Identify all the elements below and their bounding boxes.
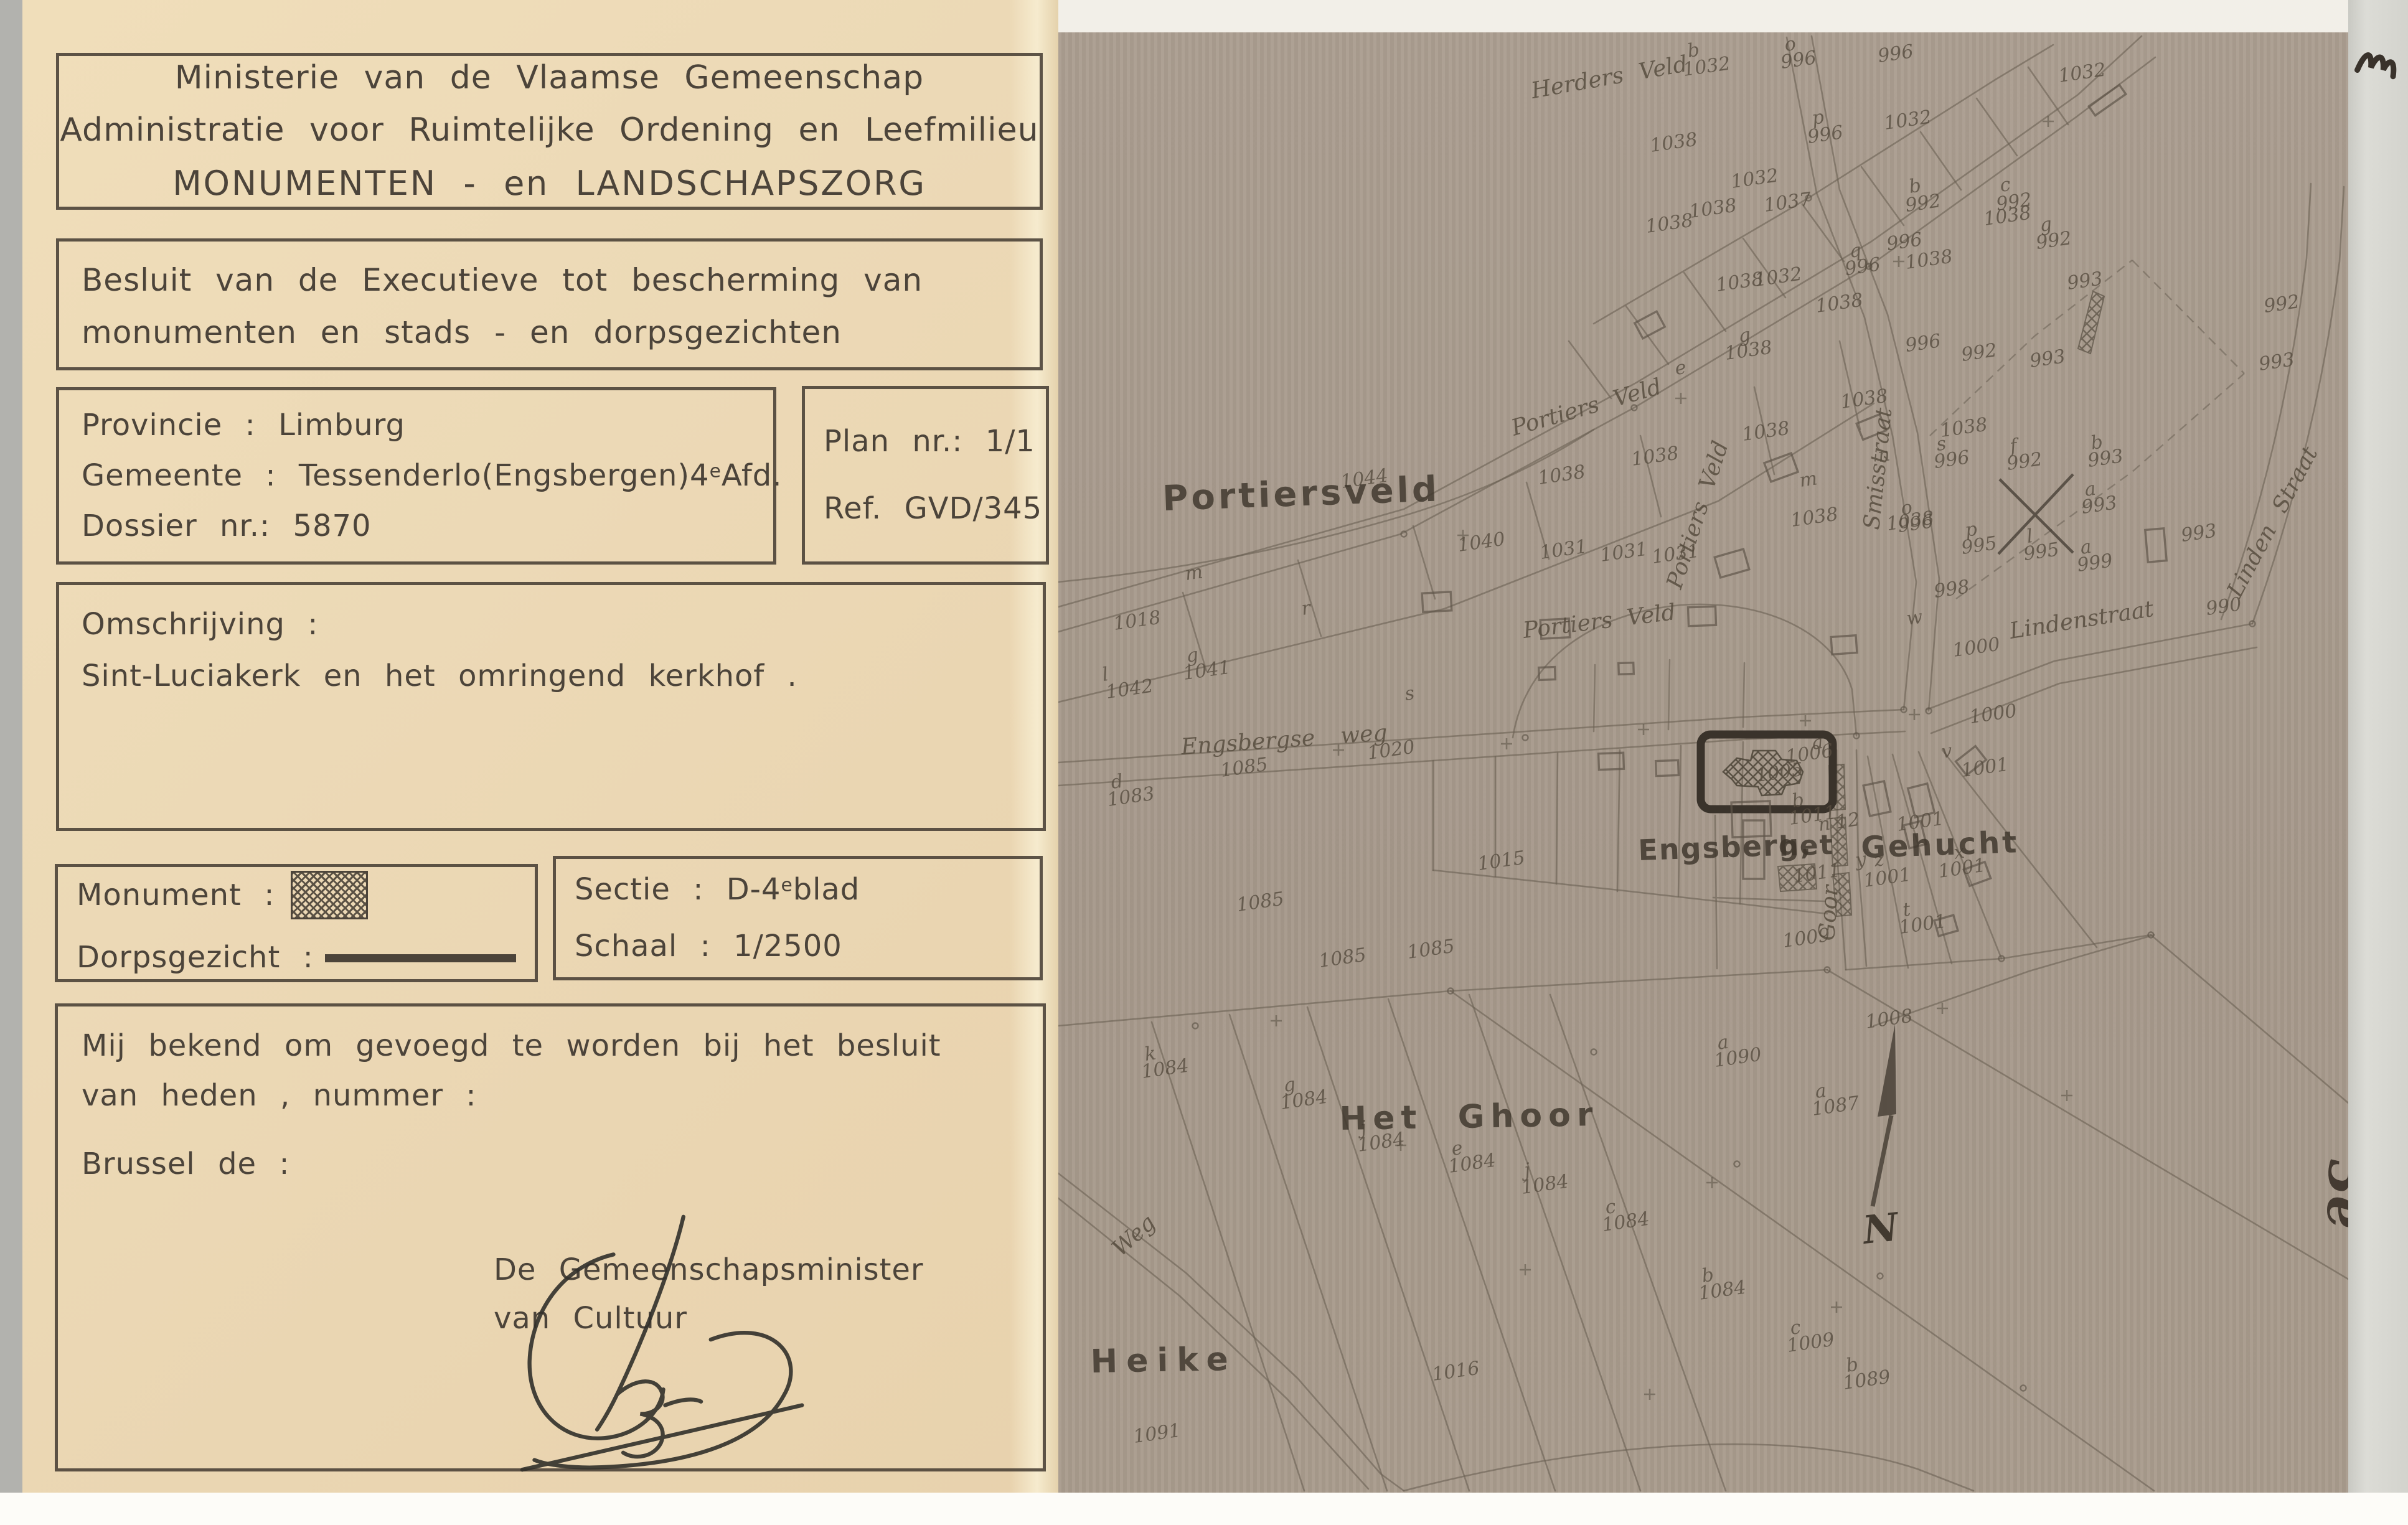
description-box: Omschrijving : Sint-Luciakerk en het omr… [56, 582, 1046, 831]
street-engsbergse-weg: Engsbergse weg [1180, 720, 1388, 760]
reference-field: Ref. GVD/345 [824, 492, 1027, 526]
parcel-number-label: 1032 [1729, 165, 1779, 193]
decree-title-box: Besluit van de Executieve tot beschermin… [56, 238, 1043, 370]
building-symbol [1619, 663, 1634, 675]
dossier-field: Dossier nr.: 5870 [82, 509, 751, 543]
building-symbol [2145, 528, 2166, 562]
parcel-number-label: 1091 [1132, 1420, 1182, 1448]
parcel-number-label: c [1604, 1196, 1617, 1219]
administration-line: Administratie voor Ruimtelijke Ordening … [60, 112, 1038, 149]
parcel-number-label: 1018 [1112, 607, 1162, 635]
parcel-number-label: a [1813, 1080, 1828, 1103]
boundary-cross-icon [1893, 256, 1904, 267]
label-portiersveld: Portiersveld [1162, 469, 1441, 519]
dorpsgezicht-line-swatch [325, 954, 516, 962]
legend-box: Monument : Dorpsgezicht : [55, 864, 538, 982]
parcel-number-label: 1038 [1741, 418, 1790, 446]
parcel-number-label: m [1183, 561, 1204, 585]
parcel-number-label: 1038 [1714, 268, 1764, 296]
decree-title-line: monumenten en stads - en dorpsgezichten [82, 315, 1017, 351]
parcel-number-label: b [1790, 789, 1805, 812]
map-sheet-top-margin [1058, 0, 2348, 32]
boundary-cross-icon [2061, 1090, 2072, 1101]
boundary-node-icon [2021, 1386, 2026, 1391]
parcel-number-label: p [1810, 106, 1825, 129]
boundary-cross-icon [1638, 724, 1649, 735]
parcel-number-label: e [1450, 1137, 1464, 1160]
parcel-number-label: o [1783, 33, 1797, 56]
parcel-number-label: 996 [1843, 253, 1882, 280]
parcel-number-label: 1038 [1536, 461, 1586, 489]
building-symbol [1863, 781, 1891, 816]
parcel-number-label: a [2083, 478, 2097, 501]
parcel-number-label: 1038 [1648, 129, 1698, 157]
boundary-node-icon [1591, 1049, 1597, 1055]
parcel-number-label: b [1845, 1354, 1860, 1377]
parcel-number-label: 993 [2180, 520, 2218, 547]
parcel-number-label: 1085 [1219, 754, 1269, 782]
parcel-number-label: m [1798, 467, 1818, 492]
parcel-number-label: 1085 [1406, 936, 1456, 964]
parcel-number-label: b [1686, 39, 1701, 62]
parcel-number-label: 1038 [1644, 210, 1694, 238]
parcel-number-label: w [1905, 606, 1924, 630]
note-line: Mij bekend om gevoegd te worden bij het … [82, 1029, 941, 1063]
boundary-nodes [1193, 195, 2255, 1391]
boundary-node-icon [1878, 1274, 1883, 1279]
monumenten-line: MONUMENTEN - en LANDSCHAPSZORG [172, 164, 926, 203]
monument-legend-label: Monument : [77, 878, 275, 913]
parcel-number-label: 1038 [1814, 289, 1864, 317]
parcel-number-label: 996 [1876, 40, 1915, 67]
parcel-number-label: b [1907, 175, 1922, 198]
building-symbol [1714, 549, 1749, 578]
street-portiers-veld: Portiers Veld [1508, 374, 1664, 441]
street-lindenstraat: Lindenstraat [2007, 596, 2156, 644]
building-symbol [1656, 760, 1679, 776]
scanned-protection-decree: Ministerie van de Vlaamse Gemeenschap Ad… [0, 0, 2408, 1525]
minister-signature-box: Mij bekend om gevoegd te worden bij het … [55, 1003, 1046, 1471]
scanner-left-edge [0, 0, 22, 1494]
parcel-number-label: 1032 [2057, 59, 2107, 87]
boundary-cross-icon [1831, 1302, 1842, 1313]
parcel-number-label: 992 [2262, 291, 2301, 317]
margin-annotation-3e: 3e [2315, 1158, 2348, 1230]
north-arrow [1873, 1024, 1896, 1206]
parcel-number-label: 996 [1806, 121, 1845, 148]
parcel-number-label: b [1700, 1264, 1715, 1287]
boundary-cross-icon [1937, 1003, 1948, 1014]
street-goor: Goor [1814, 883, 1843, 942]
province-box: Provincie : Limburg Gemeente : Tessender… [56, 387, 776, 565]
ministry-line: Ministerie van de Vlaamse Gemeenschap [175, 60, 924, 97]
plan-number-field: Plan nr.: 1/1 [824, 425, 1027, 459]
scale-field: Schaal : 1/2500 [575, 929, 1021, 964]
parcel-number-label: 1042 [1104, 675, 1154, 703]
note-line: van heden , nummer : [82, 1079, 477, 1113]
building-symbol [1422, 592, 1452, 612]
parcel-number-label: 1016 [1431, 1358, 1480, 1386]
parcel-number-label: 996 [1904, 330, 1942, 357]
parcel-number-label: 993 [2028, 345, 2067, 372]
building-symbol [1688, 606, 1716, 626]
dorpsgezicht-legend-label: Dorpsgezicht : [77, 941, 314, 975]
parcel-number-label: 1037 [1762, 189, 1813, 217]
parcel-number-label: 1032 [1883, 106, 1932, 134]
plan-number-box: Plan nr.: 1/1 Ref. GVD/345 [802, 386, 1049, 565]
label-engsberg: het [1779, 829, 1835, 863]
parcel-number-label: d [1109, 771, 1124, 794]
parcel-number-label: 1031 [1599, 538, 1648, 566]
parcel-number-label: 1001 [1862, 864, 1912, 892]
label-het-ghoor: Ghoor [1457, 1096, 1599, 1136]
parcel-number-label: 1015 [1476, 847, 1526, 875]
building-symbol [1831, 636, 1857, 655]
boundary-cross-icon [1909, 709, 1920, 720]
boundary-node-icon [1523, 735, 1528, 741]
label-gehucht: Gehucht [1860, 825, 2020, 865]
label-heike: Heike [1090, 1341, 1237, 1381]
cadastral-map: 1032b996o99610321032103710321038996p1038… [1058, 32, 2348, 1493]
parcel-number-label: 993 [2257, 349, 2296, 375]
parcel-number-label: 1038 [1982, 202, 2032, 230]
ministry-header-box: Ministerie van de Vlaamse Gemeenschap Ad… [56, 53, 1043, 210]
parcel-number-label: g [1737, 324, 1752, 347]
boundary-cross-icon [1675, 393, 1686, 404]
parcel-number-label: b [2089, 431, 2104, 454]
description-value: Sint-Luciakerk en het omringend kerkhof … [82, 659, 1020, 693]
street-linden-straat: Linden Straat [2222, 442, 2323, 602]
boundary-node-icon [1193, 1023, 1198, 1029]
parcel-number-label: a [1716, 1031, 1730, 1054]
building-symbol [2089, 85, 2125, 115]
street-portiers-veld: Portiers Veld [1521, 599, 1677, 644]
section-scale-box: Sectie : D-4eblad Schaal : 1/2500 [553, 856, 1043, 980]
parcel-number-label: 1038 [1789, 504, 1839, 532]
parcel-number-label: 1038 [1688, 195, 1738, 223]
parcel-number-label: g [1282, 1074, 1297, 1097]
parcel-number-label: 1008 [1864, 1005, 1914, 1033]
parcel-number-label: 1085 [1317, 944, 1367, 972]
parcel-number-label: 1001 [1960, 754, 2010, 782]
parcel-number-label: 993 [2066, 268, 2104, 294]
parcel-number-label: 1085 [1235, 888, 1285, 916]
parcel-number-label: e [1673, 357, 1687, 380]
boundary-cross-icon [1520, 1264, 1531, 1275]
parcel-number-label: 1031 [1538, 536, 1588, 564]
parcel-number-label: s [1403, 682, 1416, 705]
parcel-number-label: a [2079, 536, 2093, 559]
parcel-number-label: l [1101, 664, 1109, 686]
label-het-ghoor: Het [1339, 1099, 1423, 1138]
boundary-cross-icon [1271, 1015, 1282, 1026]
boundary-cross-icon [1800, 715, 1811, 726]
parcel-number-label: 1000 [1951, 634, 2001, 662]
monument-hatch-swatch [291, 871, 368, 919]
parcel-number-label: g [1185, 644, 1200, 667]
parcel-number-label: 992 [1960, 339, 1998, 366]
parcel-number-label: 998 [1932, 576, 1971, 603]
scanner-right-edge [2348, 0, 2408, 1525]
building-symbol [1539, 667, 1556, 680]
section-field: Sectie : D-4eblad [575, 873, 1021, 907]
description-label: Omschrijving : [82, 608, 1020, 642]
parcel-number-label: 1000 [1968, 700, 2018, 728]
parcel-number-label: v [1940, 740, 1954, 763]
parcel-number-label: g [2038, 213, 2053, 237]
boundary-cross-icon [1644, 1389, 1655, 1400]
building-symbol [1764, 453, 1798, 482]
boundary-cross-icon [1501, 738, 1512, 749]
scanner-bottom-margin [0, 1493, 2408, 1525]
parcel-number-label: 1038 [1939, 414, 1988, 442]
boundary-node-icon [1734, 1161, 1740, 1167]
parcel-number-label: 1038 [1630, 443, 1680, 471]
note-line: Brussel de : [82, 1147, 290, 1181]
street-herders-veld: Herders Veld [1528, 51, 1689, 104]
parcel-number-label: p [1964, 518, 1978, 542]
parcel-number-label: c [1998, 174, 2012, 197]
parcel-number-label: c [1789, 1316, 1802, 1340]
boundary-cross-icon [2043, 116, 2054, 127]
north-label: N [1860, 1204, 1902, 1253]
province-field: Provincie : Limburg [82, 408, 751, 443]
decree-title-line: Besluit van de Executieve tot beschermin… [82, 263, 1017, 299]
parcel-number-label: 1040 [1456, 528, 1506, 556]
minister-signature [494, 1212, 861, 1473]
municipality-field: Gemeente : Tessenderlo(Engsbergen)4eAfd. [82, 459, 751, 493]
parcel-number-label: k [1143, 1043, 1157, 1066]
